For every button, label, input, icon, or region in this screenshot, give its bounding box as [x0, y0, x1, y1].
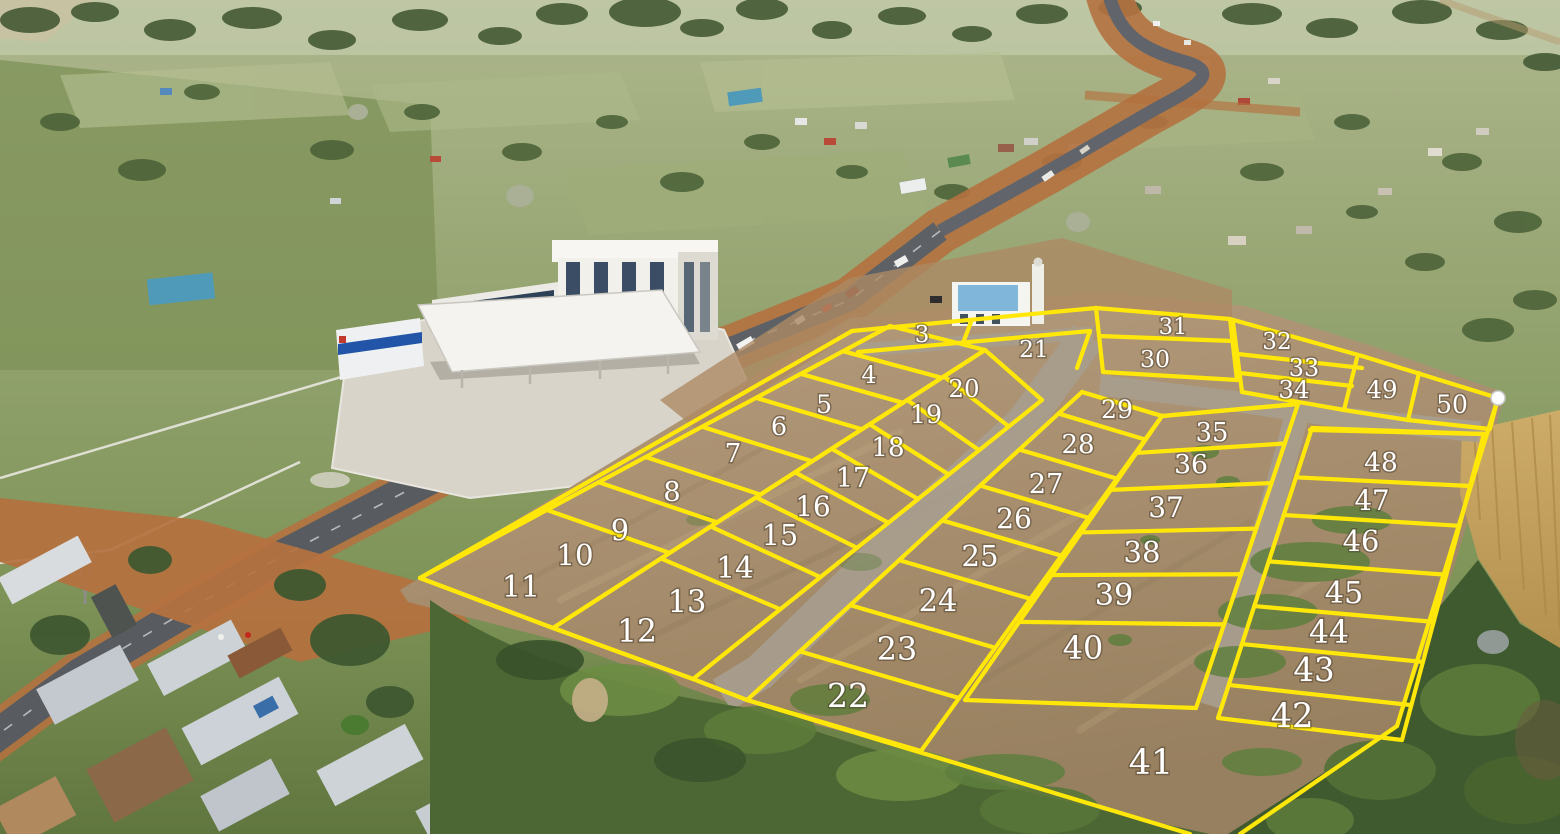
window-strip — [684, 262, 694, 332]
plot-number-label: 25 — [961, 539, 998, 573]
plot-number-label: 26 — [996, 502, 1032, 535]
plot-number-label: 42 — [1271, 696, 1314, 735]
plot-number-label: 18 — [871, 433, 904, 463]
plot-number-label: 6 — [771, 412, 787, 442]
plot-boundary-line — [1019, 622, 1224, 625]
plot-number-label: 9 — [611, 514, 629, 547]
plot-number-label: 50 — [1436, 390, 1468, 419]
plot-number-label: 48 — [1364, 447, 1398, 478]
plot-number-label: 38 — [1123, 535, 1160, 569]
plot-number-label: 10 — [556, 538, 593, 572]
plot-number-label: 36 — [1174, 449, 1208, 480]
person-dot-white — [218, 634, 224, 640]
plot-number-label: 12 — [617, 614, 657, 650]
plot-number-label: 29 — [1101, 395, 1133, 424]
plot-number-label: 16 — [795, 490, 830, 523]
plot-number-label: 22 — [827, 676, 869, 715]
plot-number-label: 24 — [919, 584, 958, 619]
plot-number-label: 49 — [1366, 375, 1397, 404]
vehicle-far-1 — [1153, 21, 1160, 26]
plot-number-label: 3 — [915, 322, 930, 348]
plot-number-label: 44 — [1309, 615, 1349, 651]
plot-number-label: 30 — [1140, 345, 1170, 373]
parked-car — [930, 296, 942, 303]
vehicle-far-2 — [1184, 40, 1191, 45]
plot-number-label: 35 — [1196, 418, 1229, 448]
plot-number-label: 21 — [1019, 336, 1049, 363]
plot-number-label: 19 — [910, 400, 942, 429]
plot-number-label: 47 — [1354, 484, 1389, 517]
plot-number-label: 23 — [877, 631, 917, 668]
plot-number-label: 14 — [716, 551, 754, 585]
plot-number-label: 27 — [1029, 469, 1064, 500]
person-dot-red — [245, 632, 251, 638]
dead-tree — [1477, 630, 1509, 654]
plot-number-label: 17 — [836, 463, 870, 494]
plot-number-label: 8 — [663, 477, 680, 508]
logo-mark — [339, 336, 346, 343]
plot-number-label: 45 — [1325, 576, 1363, 611]
plot-number-label: 11 — [502, 570, 540, 605]
corner-marker-dot — [1491, 391, 1505, 405]
plot-number-label: 39 — [1095, 578, 1134, 613]
plot-number-label: 20 — [948, 374, 979, 403]
plot-number-label: 15 — [762, 518, 798, 552]
plot-number-label: 40 — [1063, 630, 1103, 667]
mosque-roof — [958, 285, 1018, 311]
plot-number-label: 5 — [816, 390, 832, 419]
plot-number-label: 34 — [1278, 375, 1309, 404]
plot-number-label: 41 — [1129, 743, 1174, 783]
minaret-dome — [1034, 258, 1043, 267]
plot-number-label: 13 — [668, 585, 707, 620]
plot-number-label: 37 — [1148, 491, 1183, 524]
aerial-photo: 3456789101112131415161718192021222324252… — [0, 0, 1560, 834]
scene-canvas: 3456789101112131415161718192021222324252… — [0, 0, 1560, 834]
sand-patch — [572, 678, 608, 722]
plot-number-label: 31 — [1159, 314, 1188, 340]
window-strip — [700, 262, 710, 332]
plot-number-label: 32 — [1262, 329, 1291, 355]
plot-number-label: 4 — [861, 361, 876, 389]
plot-number-label: 7 — [725, 439, 742, 469]
plot-number-label: 46 — [1343, 524, 1380, 558]
plot-number-label: 43 — [1293, 651, 1334, 689]
plot-number-label: 28 — [1061, 430, 1094, 460]
plot-boundary-line — [1052, 574, 1241, 575]
